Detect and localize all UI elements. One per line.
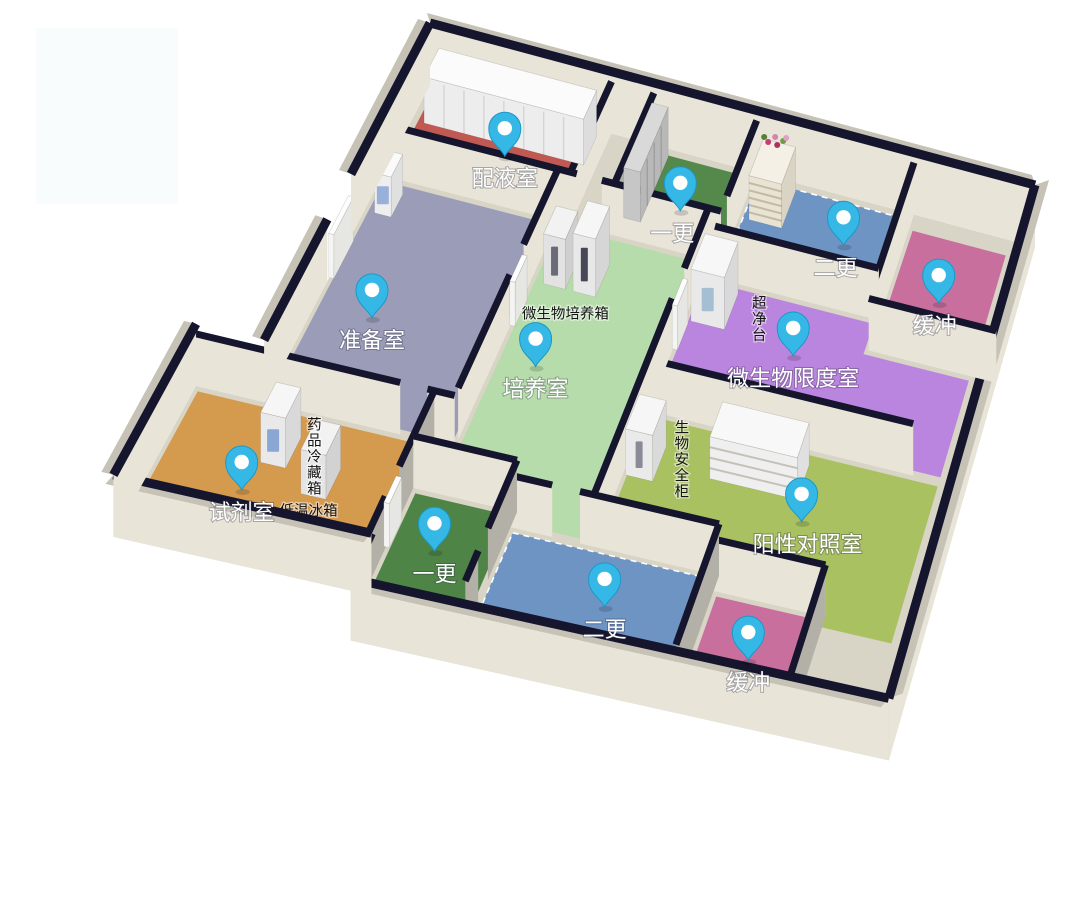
room-label-zhunbeishi: 准备室 xyxy=(339,329,405,354)
lab-floorplan: 微生物培养箱超净台生物安全柜药品冷藏箱低温冰箱配液室准备室试剂室培养室一更二更缓… xyxy=(0,0,1068,918)
pin-shadow xyxy=(787,355,801,361)
room-label-shijishi: 试剂室 xyxy=(209,501,275,526)
room-label-yigeng-bottom: 一更 xyxy=(413,562,457,587)
pin-dot-icon xyxy=(427,516,441,530)
pin-shadow xyxy=(366,317,380,323)
equipment-clean-bench-accent-panel xyxy=(702,288,714,311)
equipment-incubator-1-door-slit xyxy=(551,247,558,276)
pin-shadow xyxy=(933,302,947,308)
pin-dot-icon xyxy=(741,625,755,639)
equipment-incubator-2-door-slit xyxy=(581,248,588,282)
pin-dot-icon xyxy=(836,210,850,224)
flower-icon xyxy=(774,142,780,148)
room-label-huanchong-bottom: 缓冲 xyxy=(726,671,770,696)
equipment-medicine-fridge-accent-panel xyxy=(267,429,279,452)
flower-icon xyxy=(783,135,789,141)
pin-shadow xyxy=(742,659,756,665)
label-medicine-fridge: 药品冷藏箱 xyxy=(307,416,322,497)
pin-dot-icon xyxy=(673,176,687,190)
room-label-ergeng-top: 二更 xyxy=(814,256,858,281)
pin-dot-icon xyxy=(786,321,800,335)
room-label-ergeng-bottom: 二更 xyxy=(583,618,627,643)
room-label-peiyeshi: 配液室 xyxy=(472,167,538,192)
pin-shadow xyxy=(429,550,443,556)
room-label-huanchong-top: 缓冲 xyxy=(913,314,957,339)
pin-shadow xyxy=(796,521,810,527)
pin-shadow xyxy=(499,155,513,161)
flower-icon xyxy=(765,139,771,145)
label-clean-bench: 超净台 xyxy=(752,295,767,344)
equipment-biosafety-cabinet-door-slit xyxy=(636,441,643,468)
label-incubator: 微生物培养箱 xyxy=(522,306,609,323)
pin-dot-icon xyxy=(932,268,946,282)
pin-dot-icon xyxy=(794,487,808,501)
flower-icon xyxy=(761,134,767,140)
pin-shadow xyxy=(838,244,852,250)
flower-icon xyxy=(772,134,778,140)
door-west-front xyxy=(329,233,334,278)
pin-shadow xyxy=(599,606,613,612)
pin-shadow xyxy=(236,489,250,495)
pin-shadow xyxy=(674,210,688,216)
room-label-peiyangshi: 培养室 xyxy=(503,378,569,403)
floorplan-canvas: 微生物培养箱超净台生物安全柜药品冷藏箱低温冰箱配液室准备室试剂室培养室一更二更缓… xyxy=(0,0,1068,918)
pin-dot-icon xyxy=(235,455,249,469)
room-label-yigeng-top: 一更 xyxy=(650,222,694,247)
equipment-prep-unit-accent-panel xyxy=(377,186,389,204)
watermark-area xyxy=(36,28,178,204)
pin-dot-icon xyxy=(528,331,542,345)
pin-dot-icon xyxy=(597,572,611,586)
room-label-yangxing-duizhaoshi: 阳性对照室 xyxy=(753,533,863,558)
pin-dot-icon xyxy=(365,283,379,297)
door-reagent-front xyxy=(384,502,390,547)
pin-shadow xyxy=(530,366,544,372)
pin-dot-icon xyxy=(498,121,512,135)
equipment-lockers-front xyxy=(624,168,641,222)
door-prep-culture-front xyxy=(510,281,515,326)
room-label-weishengwu-xiandushi: 微生物限度室 xyxy=(727,367,859,392)
label-biosafety: 生物安全柜 xyxy=(675,419,690,500)
door-culture-east-front xyxy=(672,305,677,350)
